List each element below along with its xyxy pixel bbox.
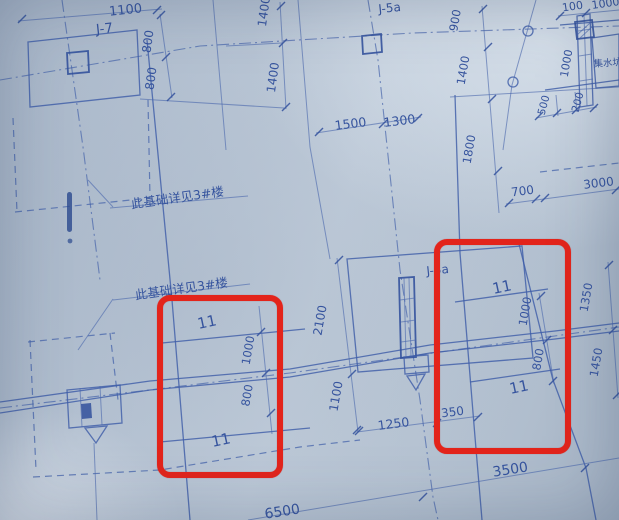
dim-right-700: 700 <box>510 183 534 200</box>
dim-bottom-3500: 3500 <box>492 459 530 480</box>
highlight-box-right <box>434 239 571 454</box>
dim-bottom-1250: 1250 <box>377 414 410 433</box>
dim-mid-1400-lower: 1400 <box>264 61 282 93</box>
dim-edge-1450: 1450 <box>587 347 606 378</box>
dim-pit-200: 200 <box>570 91 587 113</box>
note-foundation-upper: 此基础详见3#楼 <box>130 184 225 212</box>
dim-span-1500: 1500 <box>334 114 367 133</box>
dim-cap-1100: 1100 <box>327 380 346 413</box>
dim-mid-1400-upper: 1400 <box>255 0 273 28</box>
dim-pit-1000: 1000 <box>558 48 576 78</box>
dim-edge-1350: 1350 <box>577 282 596 313</box>
dim-cap-2100: 2100 <box>311 304 330 337</box>
ink-smudge <box>67 192 72 243</box>
dim-j7-800-upper: 800 <box>140 29 157 54</box>
elevation-triangle-left <box>85 426 107 443</box>
dim-j7-800-lower: 800 <box>143 66 160 91</box>
dim-span-1300: 1300 <box>383 111 416 130</box>
column-top-middle <box>140 34 382 108</box>
highlight-box-left <box>157 295 283 478</box>
dim-right-1400: 1400 <box>454 55 473 86</box>
dim-right-900: 900 <box>446 8 464 32</box>
column-detail-bottom-left <box>67 385 122 520</box>
dim-pit-500: 500 <box>536 94 553 116</box>
note-texts: 此基础详见3#楼 此基础详见3#楼 <box>130 184 229 303</box>
dim-right-3000: 3000 <box>582 174 614 192</box>
dim-corner-100: 100 <box>561 0 584 14</box>
dim-top-1100: 1100 <box>108 1 142 19</box>
label-foundation-j7: J-7 <box>94 20 114 38</box>
label-sump-pit: 集水坑 <box>593 56 619 70</box>
blueprint-photo: 1100 J-7 800 800 1400 1400 J-5a 1500 130… <box>0 0 619 520</box>
dim-bottom-6500: 6500 <box>264 501 302 520</box>
label-foundation-j5a-top: J-5a <box>377 0 402 16</box>
dim-right-1800: 1800 <box>460 134 479 165</box>
foundation-j7 <box>28 30 140 107</box>
